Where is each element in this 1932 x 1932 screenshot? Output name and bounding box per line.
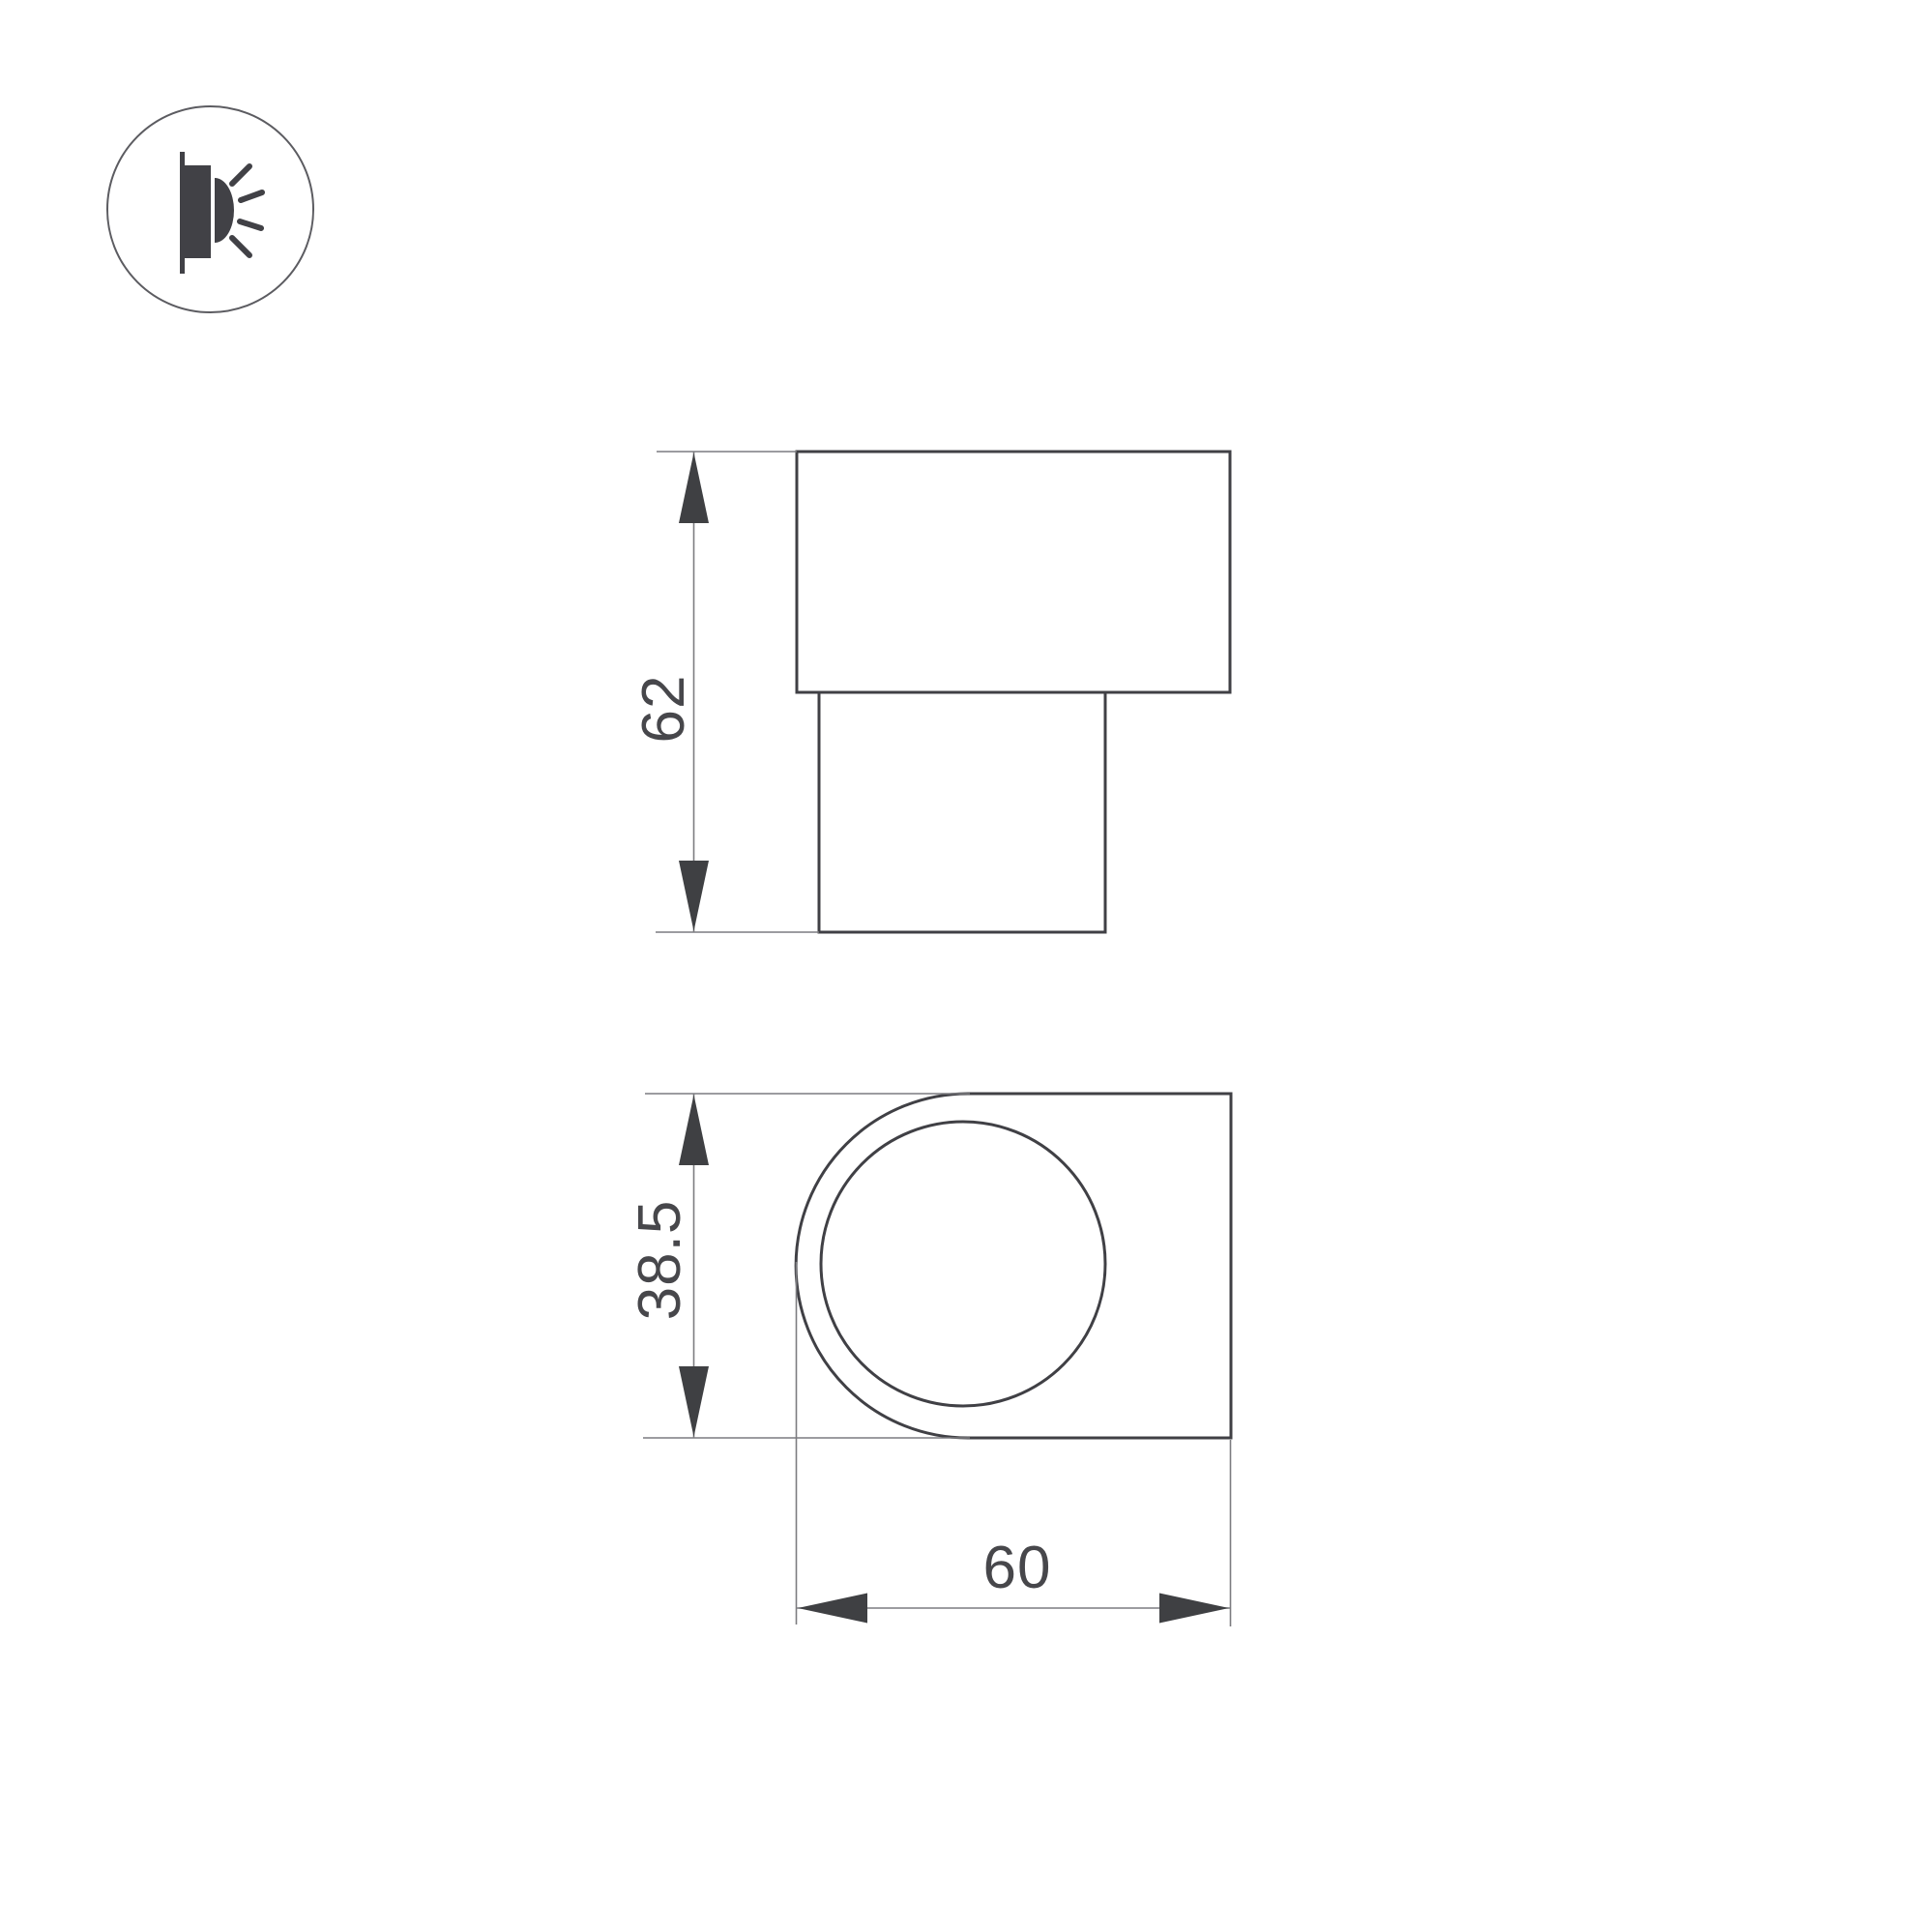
front-view — [796, 1094, 1231, 1438]
wall-light-icon — [107, 106, 313, 312]
icon-light-ray — [232, 238, 249, 255]
icon-light-dome — [215, 178, 234, 243]
side-view — [797, 452, 1230, 932]
drawing-canvas: 62 38.5 60 — [0, 0, 1932, 1932]
dimension-arrow-up — [679, 1095, 709, 1165]
dimension-arrow-up — [679, 453, 709, 523]
icon-light-ray — [240, 221, 261, 228]
front-view-housing-outline — [796, 1094, 1231, 1438]
icon-wall-line — [180, 152, 185, 274]
side-view-body-outline — [819, 692, 1105, 932]
icon-light-ray — [232, 166, 249, 184]
dimension-arrow-down — [679, 1366, 709, 1437]
icon-lamp-body — [185, 165, 211, 258]
dimension-arrow-down — [679, 861, 709, 931]
icon-light-ray — [241, 192, 262, 200]
dimension-arrow-right — [1159, 1594, 1229, 1624]
dimension-arrow-left — [798, 1594, 867, 1624]
dimension-label-width-60: 60 — [983, 1535, 1052, 1601]
side-view-height-dimension: 62 — [630, 452, 819, 932]
dimension-label-height-62: 62 — [630, 675, 697, 744]
dimension-label-height-38-5: 38.5 — [627, 1200, 693, 1321]
side-view-head-outline — [797, 452, 1230, 692]
